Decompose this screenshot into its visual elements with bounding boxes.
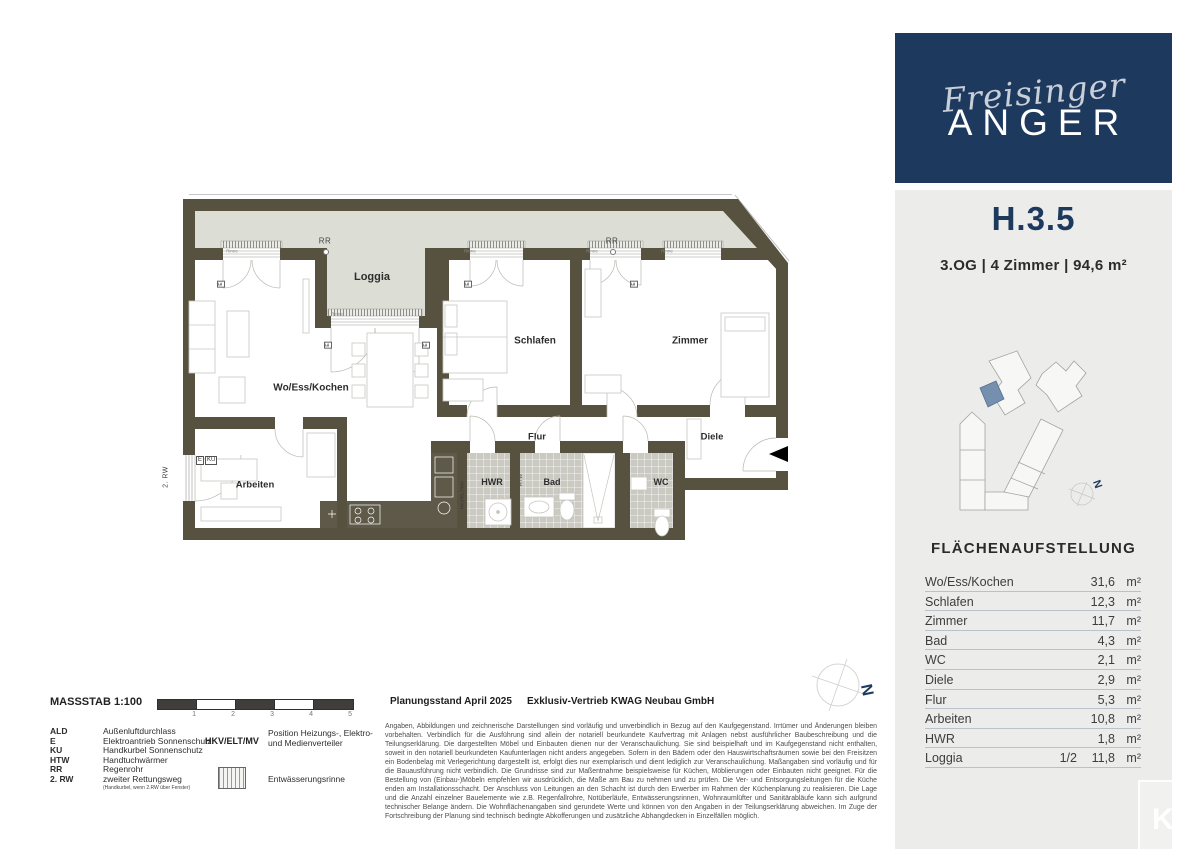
- row-value: 11,8: [1077, 751, 1115, 765]
- htw-marker: HTW: [518, 474, 524, 487]
- row-unit: m²: [1115, 673, 1141, 687]
- second-escape-route-marker: 2. RW: [163, 466, 170, 488]
- room-label-diele: Diele: [701, 432, 724, 443]
- rinne-marker: Rinne: [226, 249, 238, 254]
- north-label: N: [857, 683, 876, 698]
- unit-details: 3.OG | 4 Zimmer | 94,6 m²: [895, 257, 1172, 274]
- scale-bar: [157, 699, 354, 710]
- rr-dot-icon: [323, 249, 329, 255]
- table-row: Schlafen 12,3 m²: [925, 592, 1141, 612]
- rr-marker: RR: [606, 237, 619, 246]
- row-label: Bad: [925, 634, 1047, 648]
- room-label-zimmer: Zimmer: [672, 336, 708, 347]
- unit-id: H.3.5: [895, 200, 1172, 238]
- scale-tick: 4: [274, 711, 313, 718]
- scale-segment: [236, 700, 275, 709]
- row-factor: 1/2: [1047, 751, 1077, 765]
- row-unit: m²: [1115, 634, 1141, 648]
- row-value: 12,3: [1077, 595, 1115, 609]
- row-label: Loggia: [925, 751, 1047, 765]
- row-unit: m²: [1115, 732, 1141, 746]
- room-label-bad: Bad: [543, 477, 560, 487]
- row-value: 2,1: [1077, 653, 1115, 667]
- legend-row: 2. RW zweiter Rettungsweg: [50, 775, 212, 785]
- table-row: Flur 5,3 m²: [925, 690, 1141, 710]
- rinne-marker: Rinne: [586, 249, 598, 254]
- area-table: Wo/Ess/Kochen 31,6 m² Schlafen 12,3 m² Z…: [925, 572, 1141, 768]
- legend-note: (Handkurbel, wenn 2.RW über Fenster): [103, 785, 212, 791]
- rr-dot-icon: [610, 249, 616, 255]
- floorplan-page: Loggia Wo/Ess/Kochen Schlafen Zimmer Arb…: [0, 0, 1200, 849]
- site-plan: N: [930, 332, 1150, 518]
- table-row: Wo/Ess/Kochen 31,6 m²: [925, 572, 1141, 592]
- row-label: Zimmer: [925, 614, 1047, 628]
- scale-segment: [158, 700, 197, 709]
- legend-abbr: 2. RW: [50, 775, 103, 785]
- row-unit: m²: [1115, 595, 1141, 609]
- row-label: Schlafen: [925, 595, 1047, 609]
- scale-tick: 5: [313, 711, 352, 718]
- scale-segment: [197, 700, 236, 709]
- brand-logo: Freisinger ANGER: [895, 33, 1172, 183]
- e-sunshade-marker: E: [422, 341, 430, 348]
- table-row: HWR 1,8 m²: [925, 729, 1141, 749]
- row-unit: m²: [1115, 614, 1141, 628]
- e-sunshade-marker: E: [324, 341, 332, 348]
- kwag-watermark: KW: [1138, 780, 1200, 849]
- table-row: Bad 4,3 m²: [925, 631, 1141, 651]
- hkv-marker: HKV/ELT/MV: [461, 481, 466, 509]
- row-value: 31,6: [1077, 575, 1115, 589]
- row-label: Diele: [925, 673, 1047, 687]
- row-label: HWR: [925, 732, 1047, 746]
- scale-tick: 2: [196, 711, 235, 718]
- row-label: WC: [925, 653, 1047, 667]
- row-unit: m²: [1115, 751, 1141, 765]
- table-row: Diele 2,9 m²: [925, 670, 1141, 690]
- legal-disclaimer: Angaben, Abbildungen und zeichnerische D…: [385, 723, 877, 822]
- site-north-label: N: [1090, 479, 1104, 491]
- e-ku-markers: EKU: [196, 448, 217, 466]
- row-label: Arbeiten: [925, 712, 1047, 726]
- table-row: Zimmer 11,7 m²: [925, 611, 1141, 631]
- entry-arrow-icon: [769, 446, 788, 462]
- e-sunshade-marker: E: [630, 280, 638, 287]
- row-unit: m²: [1115, 712, 1141, 726]
- legend-text: zweiter Rettungsweg: [103, 775, 182, 785]
- room-label-arbeiten: Arbeiten: [236, 480, 275, 491]
- rinne-marker: Rinne: [331, 312, 343, 317]
- row-unit: m²: [1115, 575, 1141, 589]
- table-row: Loggia 1/2 11,8 m²: [925, 748, 1141, 768]
- north-compass-icon: N: [800, 650, 892, 730]
- site-building-tower: [960, 412, 985, 510]
- room-label-schlafen: Schlafen: [514, 336, 556, 347]
- row-value: 1,8: [1077, 732, 1115, 746]
- scale-ticks: 1 2 3 4 5: [157, 711, 354, 718]
- scale-segment: [275, 700, 314, 709]
- row-label: Flur: [925, 693, 1047, 707]
- site-building-arm: [1004, 419, 1063, 497]
- drain-channel-icon: [218, 767, 246, 789]
- row-unit: m²: [1115, 693, 1141, 707]
- rinne-marker: Rinne: [464, 249, 476, 254]
- table-row: WC 2,1 m²: [925, 650, 1141, 670]
- room-label-wc: WC: [654, 477, 669, 487]
- hkv-legend-text: Position Heizungs-, Elektro- und Medienv…: [268, 729, 373, 748]
- scale-segment: [314, 700, 353, 709]
- drain-channel-label: Entwässerungsrinne: [268, 774, 345, 784]
- site-building-b: [1036, 361, 1086, 412]
- room-label-wohnen: Wo/Ess/Kochen: [273, 383, 348, 394]
- ku-marker-box: KU: [205, 456, 217, 465]
- row-value: 11,7: [1077, 614, 1115, 628]
- room-label-flur: Flur: [528, 432, 546, 443]
- e-marker-box: E: [196, 456, 204, 465]
- row-value: 4,3: [1077, 634, 1115, 648]
- scale-tick: 1: [157, 711, 196, 718]
- rinne-marker: Rinne: [661, 249, 673, 254]
- legend-abbr: ALD: [50, 727, 103, 737]
- abbreviation-legend: ALD Außenluftdurchlass E Elektroantrieb …: [50, 727, 212, 791]
- scale-title: MASSSTAB 1:100: [50, 696, 142, 708]
- row-unit: m²: [1115, 653, 1141, 667]
- sales-contact: Exklusiv-Vertrieb KWAG Neubau GmbH: [527, 696, 714, 707]
- row-label: Wo/Ess/Kochen: [925, 575, 1047, 589]
- scale-tick: 3: [235, 711, 274, 718]
- hkv-legend-abbr: HKV/ELT/MV: [205, 736, 259, 746]
- room-label-hwr: HWR: [481, 477, 503, 487]
- e-sunshade-marker: E: [464, 280, 472, 287]
- row-value: 10,8: [1077, 712, 1115, 726]
- floor-plan-drawing: [175, 193, 800, 555]
- row-value: 5,3: [1077, 693, 1115, 707]
- row-value: 2,9: [1077, 673, 1115, 687]
- area-table-title: FLÄCHENAUFSTELLUNG: [895, 540, 1172, 557]
- planning-status: Planungsstand April 2025: [390, 696, 512, 707]
- e-sunshade-marker: E: [217, 280, 225, 287]
- rr-marker: RR: [319, 237, 332, 246]
- table-row: Arbeiten 10,8 m²: [925, 709, 1141, 729]
- room-label-loggia: Loggia: [354, 271, 390, 283]
